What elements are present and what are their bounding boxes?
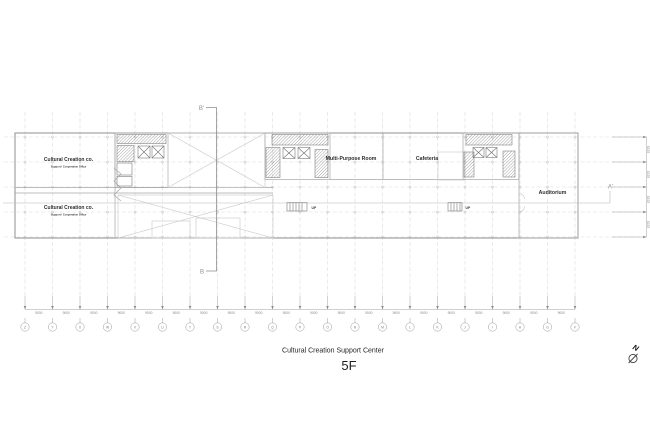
bay-dimension-label: 9000 — [310, 311, 318, 315]
bay-dimension-label: 9000 — [475, 311, 483, 315]
dimension-arrow — [643, 136, 646, 139]
room-label-auditorium: Auditorium — [539, 190, 567, 196]
building-plan — [15, 133, 578, 238]
bay-dimension-label: 9000 — [393, 311, 401, 315]
shaft-hatch — [315, 150, 328, 178]
toilet-block-hatch — [466, 135, 512, 146]
grid-bubble-label: O — [326, 325, 329, 329]
dimension-arrow — [51, 306, 54, 309]
bay-dimension-label: 9000 — [173, 311, 181, 315]
row-dimension-label: 8100 — [646, 146, 650, 154]
atrium-void-lower — [118, 195, 273, 238]
section-label-b: B — [200, 270, 204, 276]
dimension-arrow — [546, 306, 549, 309]
room-sublabel-lower-office: Support / Cooperation Office — [51, 213, 87, 217]
dimension-arrow — [354, 306, 357, 309]
dimension-arrow — [216, 306, 219, 309]
dimension-arrow — [79, 306, 82, 309]
bay-dimension-label: 9000 — [90, 311, 98, 315]
middle-core — [265, 133, 330, 180]
bay-dimension-label: 9000 — [145, 311, 153, 315]
auditorium-outline — [519, 133, 578, 238]
room-label-cafeteria: Cafeteria — [416, 156, 438, 162]
north-arrow-label: N — [631, 343, 641, 354]
bay-dimension-label: 9000 — [63, 311, 71, 315]
shaft-hatch — [117, 146, 134, 162]
dimension-arrow — [244, 306, 247, 309]
dimension-arrow — [436, 306, 439, 309]
grid-bubble-label: I — [492, 325, 493, 329]
shaft-hatch — [503, 151, 515, 177]
stair-label-up-right: UP — [466, 206, 471, 210]
room-label-lower-office: Cultural Creation co. — [44, 205, 94, 211]
bay-dimension-label: 9000 — [365, 311, 373, 315]
floor-label: 5F — [341, 358, 356, 373]
dimension-arrow — [381, 306, 384, 309]
room-sublabel-upper-office: Support / Cooperation Office — [51, 165, 87, 169]
section-line-b — [206, 108, 217, 272]
bay-dimension-label: 9000 — [200, 311, 208, 315]
bay-dimension-label: 9000 — [558, 311, 566, 315]
room-label-upper-office: Cultural Creation co. — [44, 157, 94, 163]
grid-bubble-label: L — [409, 325, 411, 329]
building-outline — [15, 133, 578, 238]
dimension-arrow — [643, 161, 646, 164]
auditorium-room — [519, 133, 578, 238]
right-core — [463, 133, 519, 180]
grid-bubble-label: T — [189, 325, 191, 329]
stair-up-right — [448, 203, 462, 212]
dimension-arrow — [299, 306, 302, 309]
stair-label-up-left: UP — [312, 206, 317, 210]
dimension-arrow — [161, 306, 164, 309]
shaft-hatch — [266, 148, 280, 178]
dimension-arrow — [519, 306, 522, 309]
dimension-arrow — [106, 306, 109, 309]
dimension-arrow — [643, 211, 646, 214]
north-arrow: N — [629, 343, 641, 363]
bay-dimension-label: 9000 — [35, 311, 43, 315]
dimension-arrow — [574, 306, 577, 309]
service-room — [117, 177, 132, 187]
bay-dimension-label: 9000 — [228, 311, 236, 315]
dimension-arrow — [491, 306, 494, 309]
dimension-arrow — [643, 236, 646, 239]
shaft-hatch — [464, 152, 474, 177]
left-core — [115, 133, 168, 188]
bay-dimension-label: 9000 — [118, 311, 126, 315]
row-dimension-label: 8100 — [646, 221, 650, 229]
dimension-arrow — [643, 186, 646, 189]
dimension-arrow — [409, 306, 412, 309]
toilet-block-hatch — [272, 135, 328, 146]
section-label-b-prime: B' — [199, 106, 204, 112]
service-room — [117, 163, 132, 175]
bay-dimension-label: 9000 — [338, 311, 346, 315]
dimension-arrow — [326, 306, 329, 309]
dimension-arrow — [189, 306, 192, 309]
room-label-multi-purpose: Multi-Purpose Room — [326, 156, 377, 162]
grid-bubble-label: M — [381, 325, 384, 329]
bay-dimension-label: 9000 — [283, 311, 291, 315]
bay-dimension-label: 9000 — [255, 311, 263, 315]
toilet-block-hatch — [117, 135, 166, 144]
grid-bubble-label: Q — [271, 325, 274, 329]
dimension-arrow — [464, 306, 467, 309]
bay-dimension-label: 9000 — [530, 311, 538, 315]
bay-dimension-label: 9000 — [448, 311, 456, 315]
cafeteria-servery — [438, 152, 465, 180]
void-inner-room — [196, 218, 240, 238]
drawing-title: Cultural Creation Support Center — [282, 348, 385, 355]
dimension-arrow — [24, 306, 27, 309]
stair-up-left — [287, 203, 307, 212]
grid-bubble-label: G — [546, 325, 549, 329]
row-dimension-label: 8100 — [646, 171, 650, 179]
grid-bubble-label: Z — [24, 325, 26, 329]
bay-dimension-label: 9000 — [420, 311, 428, 315]
grid-bubble-label: F — [574, 325, 576, 329]
floor-plan-sheet: Z9000Y9000X9000W9000V9000U9000T9000S9000… — [0, 0, 650, 433]
dimension-arrow — [134, 306, 137, 309]
section-label-a-prime: A' — [608, 185, 613, 191]
row-dimension-label: 8100 — [646, 196, 650, 204]
bay-dimension-label: 9000 — [503, 311, 511, 315]
dimension-arrow — [271, 306, 274, 309]
